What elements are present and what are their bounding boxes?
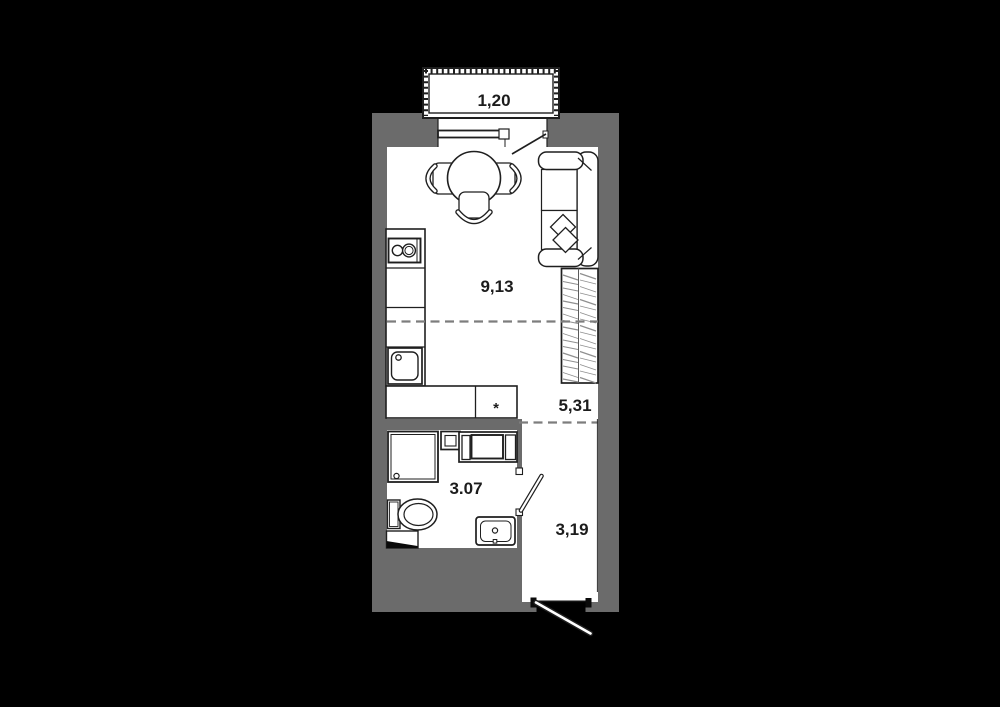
stove-burner-inner <box>405 246 413 254</box>
faucet-dot <box>396 355 401 360</box>
toilet-tank-inner <box>390 502 399 527</box>
sink-faucet-tick <box>493 540 497 544</box>
bathroom-doorway-gap <box>517 470 522 511</box>
water-heater-inner <box>445 436 456 447</box>
window-icon <box>438 131 500 138</box>
room-label-living: 9,13 <box>480 277 513 296</box>
sofa-icon <box>539 152 599 267</box>
wardrobe-icon <box>562 269 599 384</box>
door-post <box>586 598 592 608</box>
wardrobe-body <box>562 269 599 384</box>
window-end-cap <box>499 129 509 139</box>
appliance-asterisk: * <box>493 400 499 417</box>
room-label-bathroom: 3.07 <box>449 479 482 498</box>
sofa-armrest-top <box>539 152 584 170</box>
washer-unit-right-bar <box>506 435 516 460</box>
entrance-door <box>531 598 592 634</box>
sofa-backrest <box>577 152 598 266</box>
hallway-floor <box>522 419 598 593</box>
room-label-hallway: 3,19 <box>555 520 588 539</box>
floor-plan-canvas: 1,20 9,13 5,31 3.07 3,19 * <box>0 0 1000 707</box>
sink-drain-dot <box>492 528 497 533</box>
shower-inner <box>391 435 435 480</box>
floor-plan: 1,20 9,13 5,31 3.07 3,19 * <box>0 0 1000 707</box>
washer-unit-center <box>472 435 504 459</box>
toilet-bowl-inner <box>404 504 433 526</box>
sofa-seat-upper <box>542 170 578 211</box>
stove-burner <box>392 245 402 255</box>
room-label-corridor: 5,31 <box>558 396 591 415</box>
sofa-armrest-bottom <box>539 249 584 267</box>
shower-drain <box>394 473 399 478</box>
washer-unit-left-bar <box>462 436 470 460</box>
door-post <box>516 468 523 475</box>
room-label-balcony: 1,20 <box>477 91 510 110</box>
